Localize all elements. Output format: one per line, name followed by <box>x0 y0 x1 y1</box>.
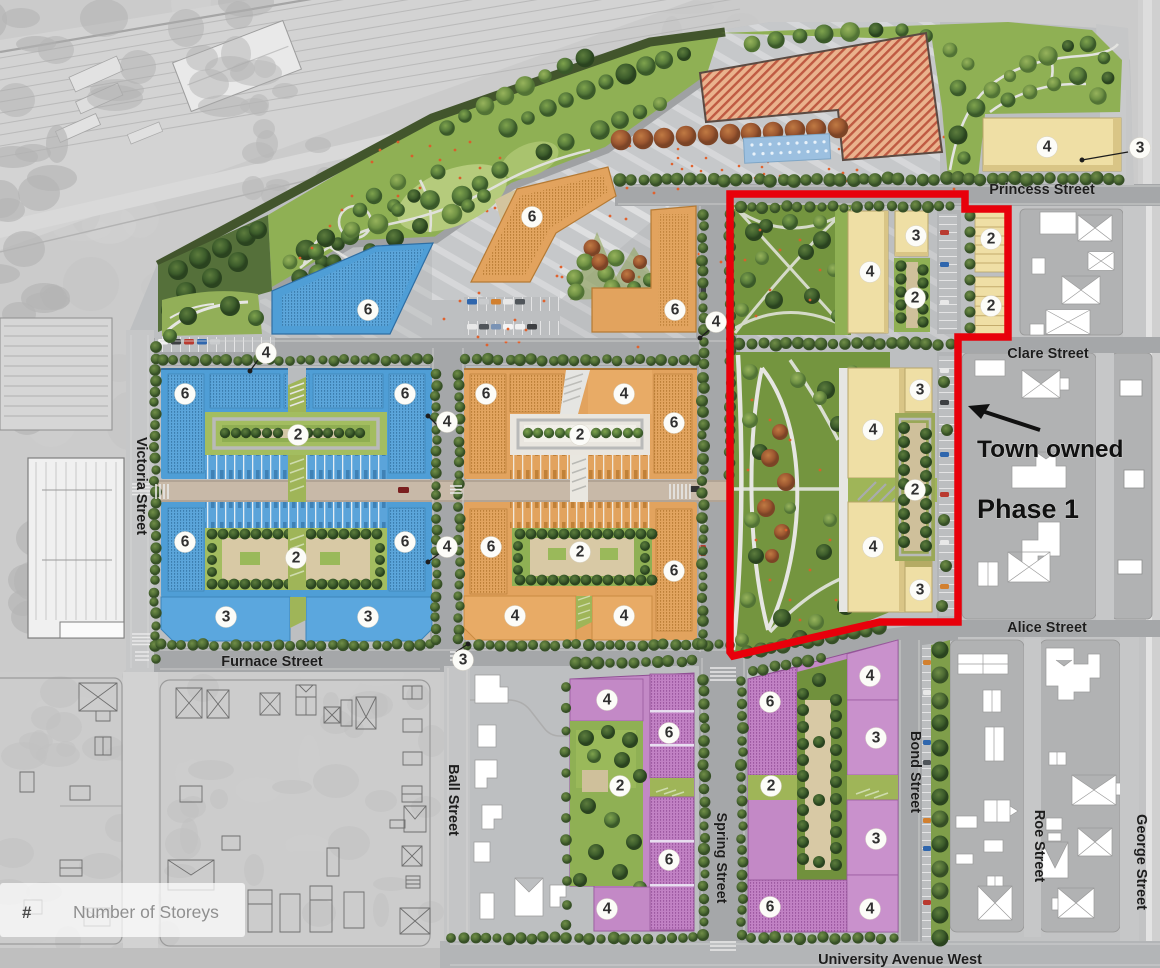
svg-text:3: 3 <box>364 609 373 626</box>
svg-text:Clare Street: Clare Street <box>1007 346 1089 362</box>
svg-text:4: 4 <box>869 539 878 556</box>
svg-text:#: # <box>22 903 32 922</box>
svg-text:2: 2 <box>911 482 920 499</box>
svg-text:4: 4 <box>620 386 629 403</box>
svg-text:Furnace Street: Furnace Street <box>221 654 323 670</box>
svg-text:2: 2 <box>576 427 585 444</box>
svg-text:2: 2 <box>767 778 776 795</box>
svg-text:3: 3 <box>459 652 468 669</box>
svg-text:6: 6 <box>670 563 679 580</box>
svg-text:3: 3 <box>872 831 881 848</box>
svg-text:Victoria Street: Victoria Street <box>133 437 149 535</box>
svg-text:6: 6 <box>665 852 674 869</box>
svg-text:6: 6 <box>364 302 373 319</box>
svg-text:3: 3 <box>222 609 231 626</box>
svg-text:6: 6 <box>766 694 775 711</box>
svg-text:4: 4 <box>866 668 875 685</box>
svg-text:6: 6 <box>181 534 190 551</box>
svg-text:6: 6 <box>671 302 680 319</box>
svg-text:Spring Street: Spring Street <box>713 812 729 903</box>
svg-text:4: 4 <box>603 901 612 918</box>
svg-text:6: 6 <box>181 386 190 403</box>
svg-text:Alice Street: Alice Street <box>1007 620 1087 636</box>
svg-text:4: 4 <box>262 345 271 362</box>
svg-text:2: 2 <box>987 298 996 315</box>
svg-text:2: 2 <box>987 231 996 248</box>
svg-text:6: 6 <box>528 209 537 226</box>
svg-text:2: 2 <box>616 778 625 795</box>
svg-text:6: 6 <box>670 415 679 432</box>
svg-text:3: 3 <box>916 382 925 399</box>
svg-text:2: 2 <box>911 290 920 307</box>
svg-text:2: 2 <box>294 427 303 444</box>
svg-text:Bond Street: Bond Street <box>907 731 923 813</box>
svg-text:4: 4 <box>511 608 520 625</box>
svg-text:6: 6 <box>487 539 496 556</box>
svg-text:4: 4 <box>443 539 452 556</box>
svg-text:4: 4 <box>603 692 612 709</box>
svg-text:3: 3 <box>912 228 921 245</box>
svg-text:4: 4 <box>869 422 878 439</box>
svg-text:Town owned: Town owned <box>977 436 1124 463</box>
svg-text:Number of Storeys: Number of Storeys <box>73 902 219 922</box>
svg-text:4: 4 <box>443 414 452 431</box>
svg-text:6: 6 <box>665 725 674 742</box>
svg-text:2: 2 <box>292 550 301 567</box>
svg-text:4: 4 <box>866 264 875 281</box>
svg-text:6: 6 <box>401 534 410 551</box>
svg-text:6: 6 <box>401 386 410 403</box>
svg-text:3: 3 <box>1136 140 1145 157</box>
svg-text:3: 3 <box>916 582 925 599</box>
svg-text:4: 4 <box>1043 139 1052 156</box>
svg-text:George Street: George Street <box>1133 814 1149 910</box>
svg-text:Roe Street: Roe Street <box>1031 810 1047 883</box>
svg-text:4: 4 <box>620 608 629 625</box>
svg-text:3: 3 <box>872 730 881 747</box>
svg-text:6: 6 <box>482 386 491 403</box>
svg-text:6: 6 <box>766 899 775 916</box>
svg-text:4: 4 <box>866 901 875 918</box>
svg-text:2: 2 <box>576 544 585 561</box>
svg-text:Phase 1: Phase 1 <box>977 494 1079 524</box>
svg-text:Princess Street: Princess Street <box>989 182 1095 198</box>
svg-text:University Avenue West: University Avenue West <box>818 952 982 968</box>
svg-text:4: 4 <box>712 314 721 331</box>
svg-text:Ball Street: Ball Street <box>445 764 461 836</box>
